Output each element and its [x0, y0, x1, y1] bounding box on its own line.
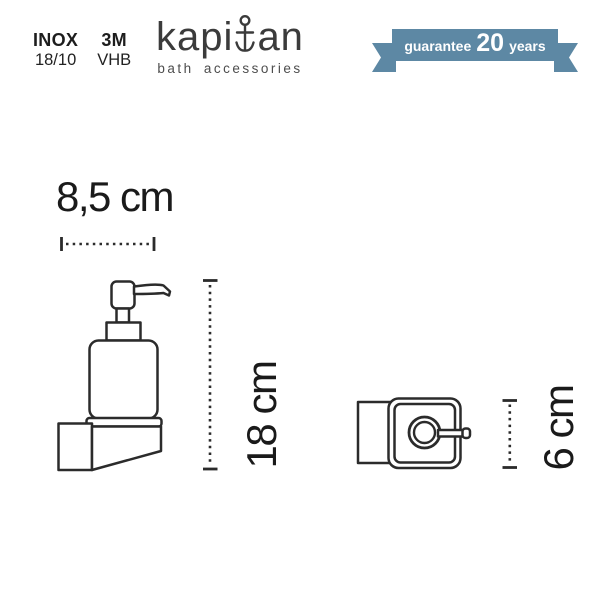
wall-bracket-wedge [92, 427, 161, 471]
wall-plate-top-view [358, 402, 390, 463]
depth-dimension-label: 6 cm [538, 385, 580, 470]
pump-spout [134, 285, 170, 296]
product-spec-sheet: INOX 18/10 3M VHB kapi an bath accessori… [0, 0, 600, 600]
pump-collar [107, 323, 141, 341]
bottle-body [90, 341, 158, 419]
width-dimension-label: 8,5 cm [56, 176, 173, 218]
top-view [358, 399, 517, 469]
pump-head [112, 282, 135, 309]
technical-drawing [0, 0, 600, 600]
spout-tip-top-view [463, 429, 471, 439]
wall-bracket-face [59, 424, 93, 471]
pump-stem [117, 309, 130, 323]
spout-bar-top-view [438, 430, 464, 437]
pump-inner-circle [414, 422, 435, 443]
height-dimension-label: 18 cm [241, 362, 283, 469]
front-view [59, 237, 218, 470]
holder-ring [87, 418, 162, 427]
